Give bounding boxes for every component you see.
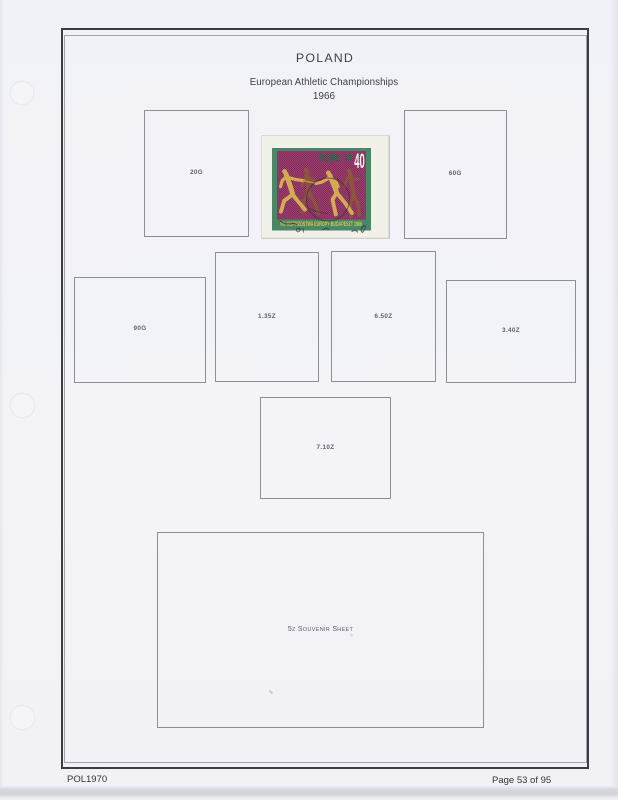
svg-text:VIII MISTRZOSTWA EUROPY·BUDAPE: VIII MISTRZOSTWA EUROPY·BUDAPESZT 1966	[280, 221, 362, 228]
svg-text:GR: GR	[345, 154, 352, 163]
svg-text:POLSKA: POLSKA	[320, 152, 339, 164]
svg-text:40: 40	[354, 149, 364, 174]
